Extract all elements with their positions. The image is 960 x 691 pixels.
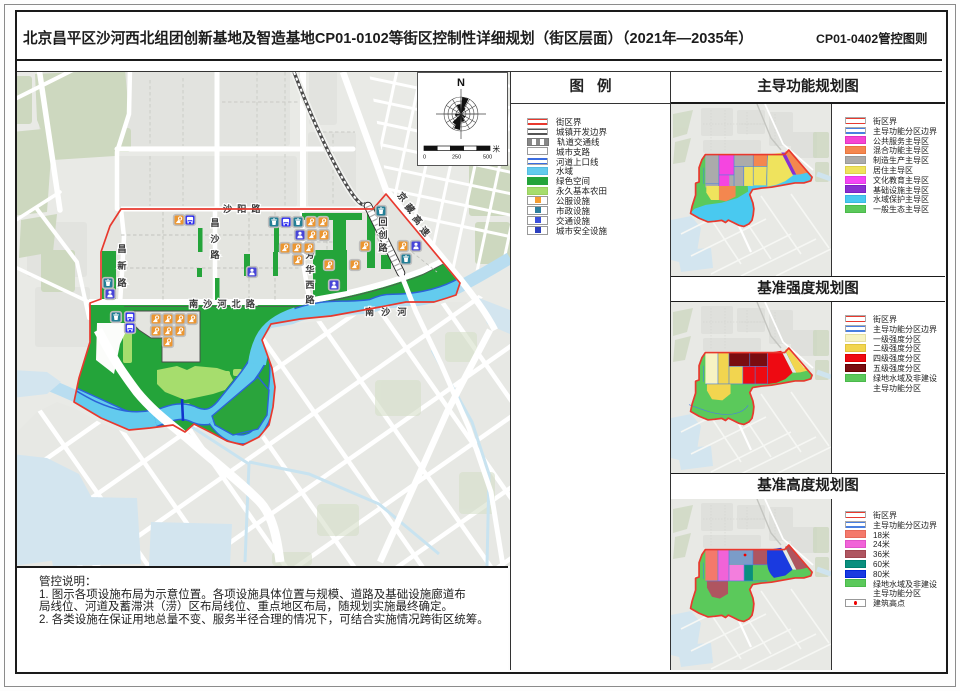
svg-text:路: 路 bbox=[378, 242, 388, 253]
svg-text:昌: 昌 bbox=[210, 218, 219, 228]
svg-text:250: 250 bbox=[452, 155, 461, 161]
svg-text:N: N bbox=[457, 77, 465, 89]
svg-text:华: 华 bbox=[305, 264, 314, 275]
svg-text:500: 500 bbox=[483, 155, 492, 161]
svg-text:昌: 昌 bbox=[117, 244, 126, 254]
svg-text:新: 新 bbox=[117, 260, 126, 271]
svg-text:路: 路 bbox=[305, 294, 315, 305]
svg-text:路: 路 bbox=[117, 277, 127, 288]
svg-text:沙: 沙 bbox=[210, 234, 220, 244]
svg-text:0: 0 bbox=[423, 155, 426, 161]
svg-text:回: 回 bbox=[378, 217, 387, 227]
svg-text:创: 创 bbox=[377, 229, 387, 240]
svg-text:南沙河北路: 南沙河北路 bbox=[189, 298, 260, 309]
svg-text:米: 米 bbox=[493, 144, 501, 154]
svg-text:路: 路 bbox=[210, 249, 220, 260]
svg-text:西: 西 bbox=[305, 280, 314, 290]
